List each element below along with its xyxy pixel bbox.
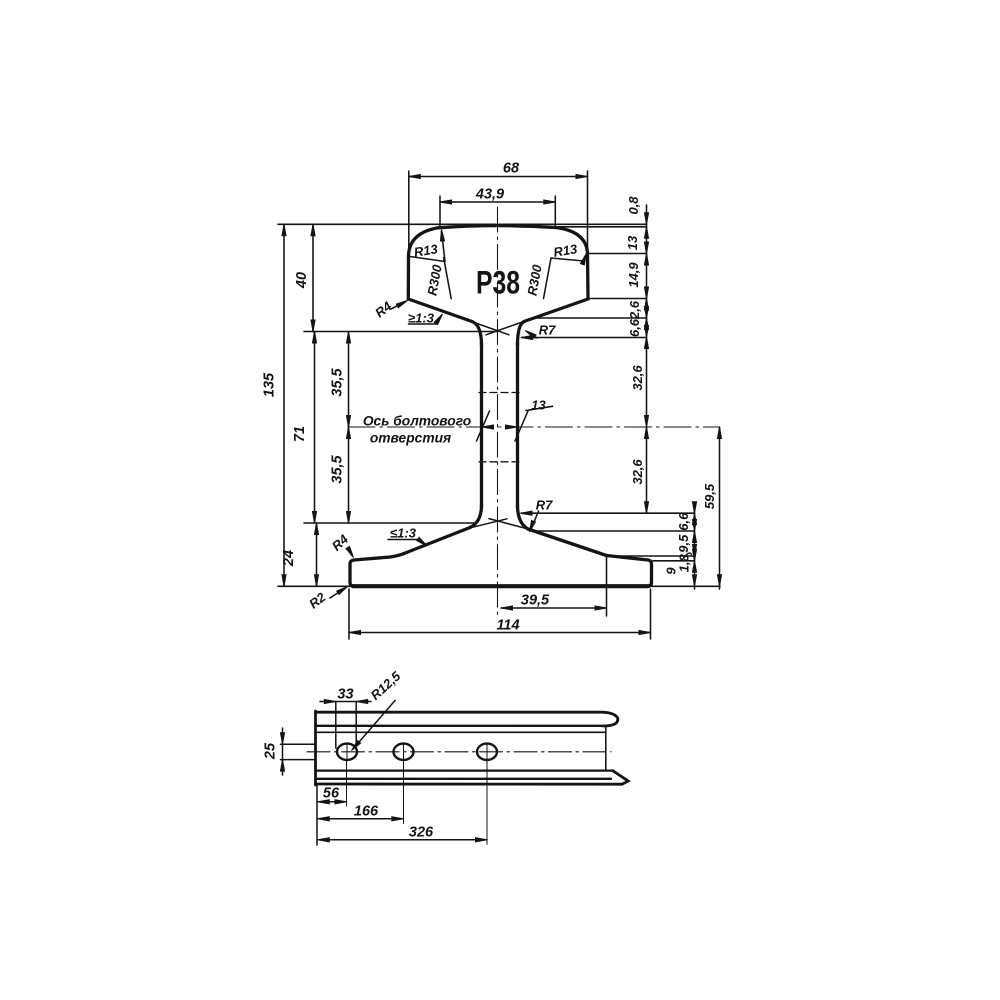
svg-text:24: 24	[281, 550, 297, 567]
svg-text:отверстия: отверстия	[370, 431, 451, 446]
svg-text:326: 326	[409, 825, 434, 841]
svg-text:≤1:3: ≤1:3	[390, 526, 417, 541]
svg-text:6,6: 6,6	[627, 318, 642, 337]
svg-text:39,5: 39,5	[521, 593, 550, 609]
svg-text:71: 71	[292, 426, 308, 442]
svg-text:13: 13	[531, 398, 546, 413]
svg-text:R7: R7	[536, 498, 553, 513]
svg-text:59,5: 59,5	[702, 483, 717, 509]
svg-text:1,8: 1,8	[677, 553, 692, 572]
svg-text:2,6: 2,6	[627, 300, 642, 320]
svg-text:32,6: 32,6	[630, 365, 645, 391]
svg-text:6,6: 6,6	[676, 512, 691, 531]
svg-text:R7: R7	[539, 323, 556, 338]
svg-text:135: 135	[262, 372, 278, 397]
svg-text:166: 166	[354, 804, 379, 820]
svg-text:25: 25	[263, 742, 279, 760]
svg-text:114: 114	[496, 618, 519, 634]
svg-text:68: 68	[503, 161, 520, 177]
svg-text:9,5: 9,5	[676, 534, 691, 553]
svg-text:Ось болтового: Ось болтового	[363, 414, 471, 429]
svg-text:35,5: 35,5	[330, 454, 346, 483]
svg-text:56: 56	[323, 786, 340, 802]
svg-text:0,8: 0,8	[626, 196, 641, 215]
svg-text:14,9: 14,9	[626, 262, 641, 288]
svg-text:≥1:3: ≥1:3	[408, 311, 435, 326]
svg-text:32,6: 32,6	[630, 459, 645, 485]
svg-text:43,9: 43,9	[475, 187, 504, 203]
svg-text:40: 40	[294, 272, 310, 289]
svg-text:9: 9	[663, 567, 678, 575]
svg-text:Р38: Р38	[476, 265, 520, 301]
svg-text:35,5: 35,5	[330, 367, 346, 396]
svg-text:33: 33	[337, 687, 353, 703]
svg-text:13: 13	[625, 235, 640, 250]
